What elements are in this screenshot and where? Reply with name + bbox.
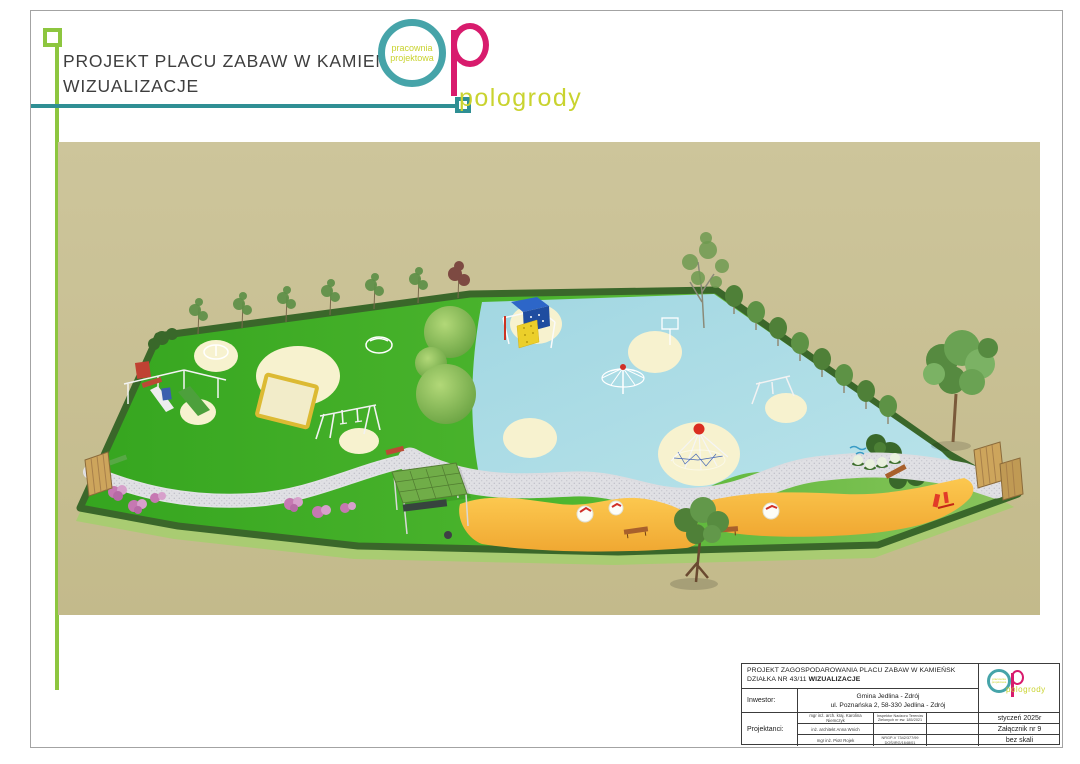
mini-logo-studio-text: pracownia projektowa — [992, 678, 1007, 684]
investor-value: Gmina Jedlina - Zdrój ul. Poznańska 2, 5… — [798, 689, 979, 713]
plot-title-bold: WIZUALIZACJE — [809, 676, 861, 683]
empty-cell-3 — [927, 735, 979, 746]
logo-wordmark: pologrody — [459, 84, 582, 113]
designer-name-3: mgr inż. Piotr Rojek — [798, 735, 874, 746]
investor-address: ul. Poznańska 2, 58-330 Jedlina - Zdrój — [831, 701, 946, 710]
designer-credentials-2 — [874, 724, 927, 735]
investor-name: Gmina Jedlina - Zdrój — [856, 692, 919, 701]
drawing-sheet: PROJEKT PLACU ZABAW W KAMIEŃSKU WIZUALIZ… — [0, 0, 1080, 764]
logo-studio-line1: pracownia — [390, 43, 434, 53]
designer-name-2: inż. architekt Anna Wnich — [798, 724, 874, 735]
empty-cell-1 — [927, 713, 979, 724]
logo-p-bowl-icon — [451, 23, 489, 67]
entrance-gate-left — [85, 452, 112, 496]
project-title-line2: DZIAŁKA NR 43/11 WIZUALIZACJE — [747, 676, 978, 685]
title-block: PROJEKT ZAGOSPODAROWANIA PLACU ZABAW W K… — [741, 663, 1060, 745]
studio-logo: pracownia projektowa pologrody — [370, 8, 600, 118]
date-cell: styczeń 2025r — [979, 713, 1060, 724]
lime-accent-square — [43, 28, 62, 47]
playground-visualization — [58, 142, 1040, 615]
investor-label: Inwestor: — [742, 689, 798, 713]
attachment-cell: Załącznik nr 9 — [979, 724, 1060, 735]
mini-logo-wordmark: pologrody — [1006, 685, 1046, 694]
designer-credentials-3: NRGP-V 7342/377/99 DOŚ/IRG/1648/01 — [874, 735, 927, 746]
designer-credentials-1: Inspektor Nadzoru Terenów Zielonych nr e… — [874, 713, 927, 724]
project-title-line1: PROJEKT ZAGOSPODAROWANIA PLACU ZABAW W K… — [747, 667, 978, 676]
logo-circle-o-icon: pracownia projektowa — [378, 19, 446, 87]
logo-studio-text: pracownia projektowa — [390, 43, 434, 63]
mini-logo-studio-line2: projektowa — [992, 681, 1007, 684]
plot-number: DZIAŁKA NR 43/11 — [747, 676, 809, 683]
mini-logo-p-bowl-icon — [1011, 670, 1024, 685]
logo-studio-line2: projektowa — [390, 53, 434, 63]
designer-name-1: mgr inż. arch. kraj. Karolina Niemczyk — [798, 713, 874, 724]
scale-cell: bez skali — [979, 735, 1060, 746]
trash-bin — [444, 531, 452, 539]
empty-cell-2 — [927, 724, 979, 735]
designers-label: Projektanci: — [742, 713, 798, 746]
title-block-project: PROJEKT ZAGOSPODAROWANIA PLACU ZABAW W K… — [742, 664, 979, 689]
title-block-logo: pracownia projektowa pologrody — [979, 664, 1060, 713]
